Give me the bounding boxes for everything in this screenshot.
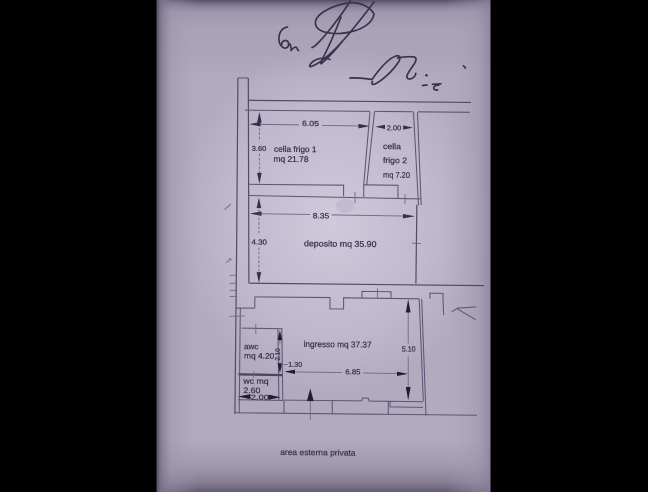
svg-text:ingresso mq 37.37: ingresso mq 37.37 (304, 339, 372, 350)
svg-text:awc: awc (244, 342, 259, 351)
svg-text:deposito mq 35.90: deposito mq 35.90 (304, 238, 377, 249)
svg-text:mq 4.20: mq 4.20 (244, 351, 275, 360)
svg-text:4.30: 4.30 (252, 238, 268, 247)
svg-text:1.30: 1.30 (288, 362, 302, 369)
svg-text:6.05: 6.05 (302, 119, 319, 128)
svg-text:mq 21.78: mq 21.78 (274, 155, 309, 164)
svg-text:2.00: 2.00 (387, 125, 402, 132)
svg-text:8.35: 8.35 (313, 211, 330, 220)
svg-text:area esterna privata: area esterna privata (280, 448, 356, 458)
svg-text:mq 7.20: mq 7.20 (383, 170, 411, 179)
svg-text:2.10: 2.10 (275, 348, 282, 361)
svg-text:cella: cella (383, 142, 402, 151)
svg-text:5.10: 5.10 (402, 344, 416, 353)
svg-text:6.85: 6.85 (345, 367, 360, 376)
svg-text:3.60: 3.60 (252, 146, 267, 153)
svg-text:wc mq: wc mq (242, 377, 268, 386)
svg-text:cella frigo 1: cella frigo 1 (274, 145, 317, 154)
svg-text:2.00: 2.00 (251, 395, 269, 402)
svg-text:frigo 2: frigo 2 (383, 156, 408, 165)
